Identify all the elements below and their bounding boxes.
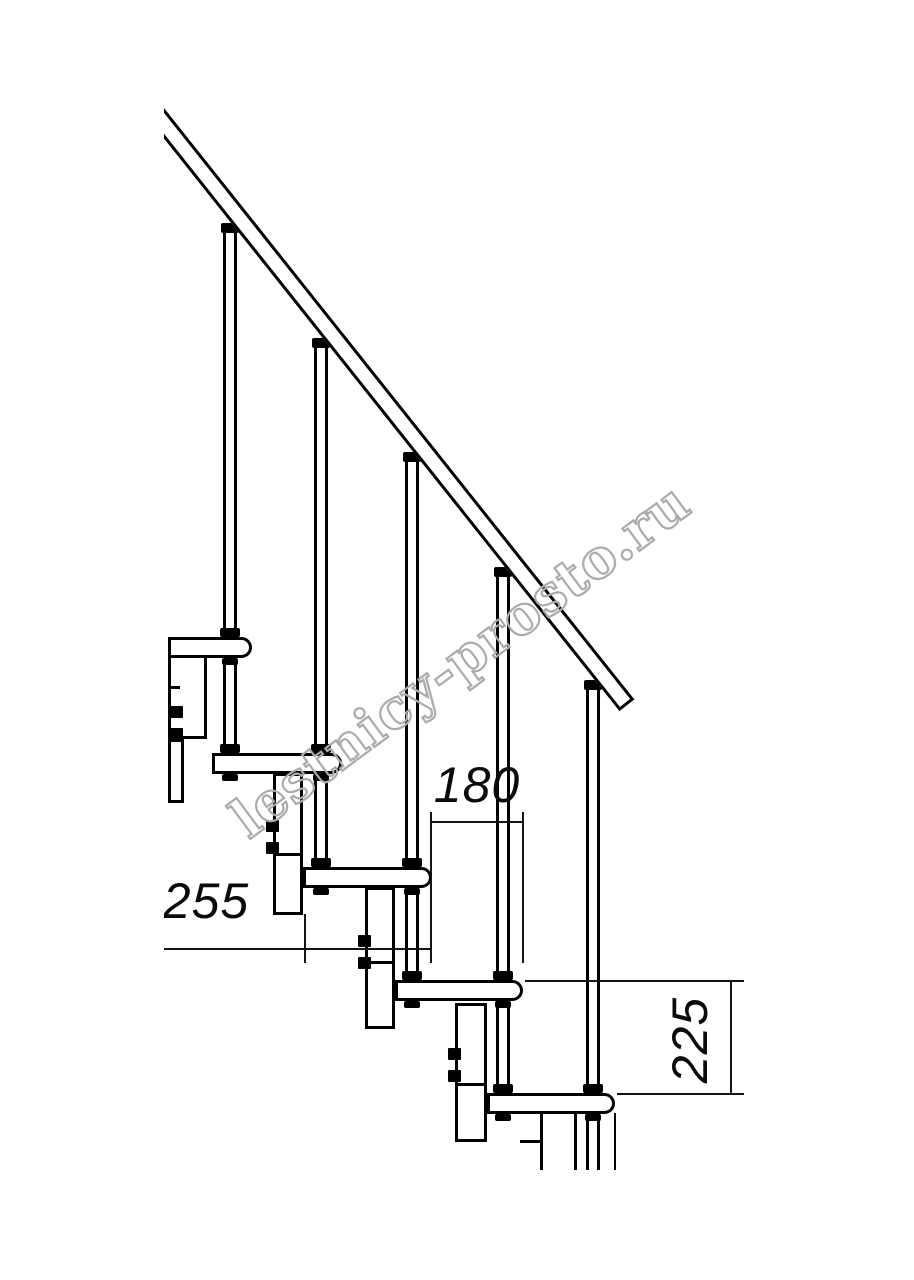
dimension-line <box>162 948 431 950</box>
bolt <box>448 1048 461 1060</box>
support-pole-collar <box>311 858 331 867</box>
support-pole <box>586 1114 600 1170</box>
bolt <box>170 728 183 740</box>
extension-line <box>522 812 524 963</box>
dimension-line <box>730 981 732 1094</box>
module-joint-line <box>168 686 180 689</box>
nut-under-step <box>495 1001 511 1008</box>
baluster-bottom-collar <box>402 858 422 867</box>
baluster-pole <box>223 229 237 637</box>
support-module <box>540 1113 577 1170</box>
bolt <box>170 706 183 718</box>
extension-line <box>304 914 306 963</box>
nut-under-step <box>585 1114 601 1121</box>
dimension-label-going: 180 <box>422 756 532 814</box>
support-pole <box>223 661 237 753</box>
nut-under-step <box>404 888 420 895</box>
baluster-pole <box>586 686 600 1093</box>
technical-drawing: 180 255 225 lestnicy-prosto.ru <box>0 0 914 1280</box>
support-pole-collar <box>402 971 422 980</box>
bolt <box>448 1070 461 1082</box>
nut-under-step <box>495 1114 511 1121</box>
step-tread <box>487 1093 615 1114</box>
baluster-bottom-collar <box>493 971 513 980</box>
module-joint-line <box>455 1083 487 1086</box>
support-pole <box>405 891 419 980</box>
left-crop-mask <box>0 0 164 1280</box>
dimension-line <box>431 821 523 823</box>
edge-line <box>614 1113 616 1170</box>
bolt <box>358 935 371 947</box>
support-pole-collar <box>493 1084 513 1093</box>
nut-under-step <box>404 1001 420 1008</box>
dimension-label-rise: 225 <box>662 978 718 1102</box>
step-tread <box>168 637 252 658</box>
extension-line <box>430 812 432 963</box>
bolt <box>358 957 371 969</box>
nut-under-step <box>222 658 238 665</box>
support-module <box>168 655 207 739</box>
step-tread <box>303 867 432 888</box>
baluster-bottom-collar <box>220 628 240 637</box>
module-joint-line <box>520 1140 542 1143</box>
step-tread <box>395 980 523 1001</box>
support-pole <box>496 1004 510 1093</box>
nut-under-step <box>313 888 329 895</box>
baluster-bottom-collar <box>583 1084 603 1093</box>
